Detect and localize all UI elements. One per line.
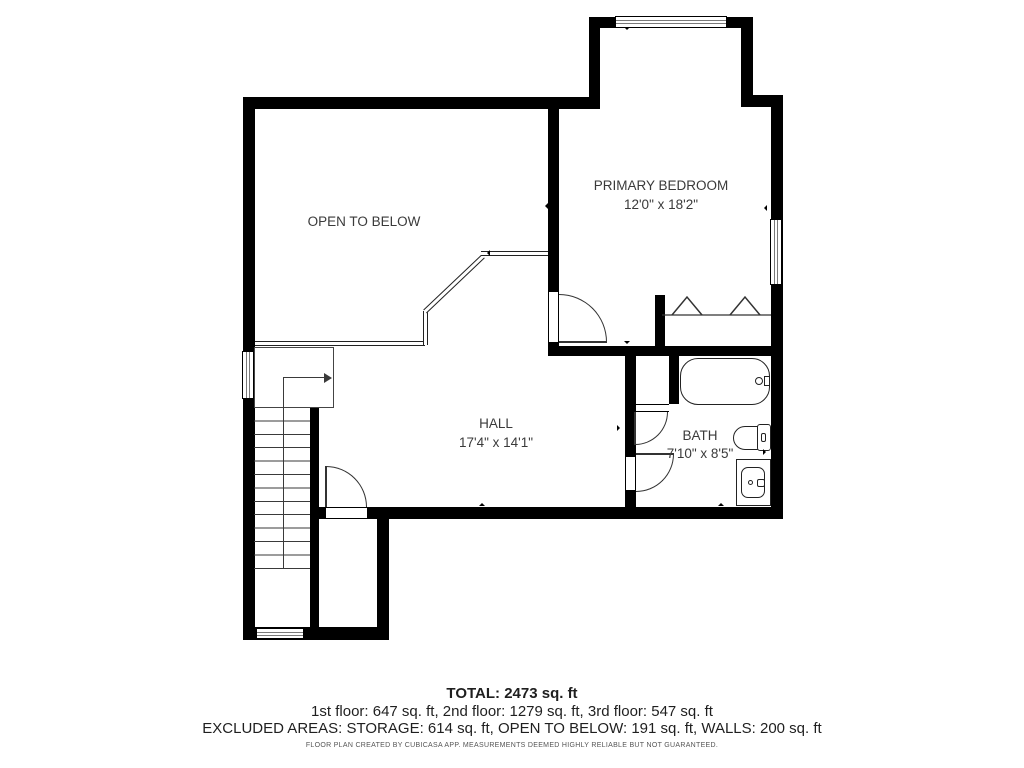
tick-mark bbox=[479, 500, 485, 506]
room-label-bath: BATH 7'10" x 8'5" bbox=[667, 427, 734, 463]
window bbox=[242, 351, 254, 399]
room-label-open-to-below: OPEN TO BELOW bbox=[308, 212, 421, 231]
door-arc bbox=[559, 294, 607, 342]
floor-plan-page: OPEN TO BELOW PRIMARY BEDROOM 12'0" x 18… bbox=[0, 0, 1024, 768]
wall bbox=[548, 97, 559, 292]
window bbox=[770, 219, 782, 285]
stair-direction-line bbox=[283, 377, 325, 378]
stair-direction-arrow bbox=[324, 373, 337, 383]
tick-mark bbox=[542, 203, 548, 209]
wall bbox=[377, 507, 389, 640]
toilet bbox=[733, 426, 760, 450]
door-arc bbox=[635, 412, 668, 445]
room-label-hall: HALL 17'4" x 14'1" bbox=[459, 414, 533, 452]
closet-bifold-doors bbox=[660, 293, 774, 318]
window bbox=[256, 628, 304, 639]
tick-mark bbox=[624, 341, 630, 347]
door-leaf bbox=[559, 341, 607, 343]
tick-mark bbox=[312, 424, 318, 430]
room-dimensions: 7'10" x 8'5" bbox=[667, 445, 734, 463]
tick-mark bbox=[484, 250, 490, 256]
door-opening bbox=[548, 292, 559, 342]
sink-drain bbox=[748, 480, 753, 485]
wall bbox=[367, 507, 783, 519]
wall bbox=[243, 97, 255, 352]
door-opening bbox=[625, 457, 636, 490]
wall bbox=[310, 407, 319, 640]
tick-mark bbox=[761, 205, 767, 211]
wall bbox=[625, 490, 636, 510]
bathtub-faucet bbox=[764, 376, 770, 386]
door-leaf bbox=[325, 466, 327, 507]
wall bbox=[741, 17, 753, 107]
room-name: PRIMARY BEDROOM bbox=[594, 176, 729, 195]
summary-disclaimer: FLOOR PLAN CREATED BY CUBICASA APP. MEAS… bbox=[0, 741, 1024, 751]
door-leaf bbox=[634, 412, 636, 445]
stairs bbox=[254, 408, 310, 569]
wall bbox=[589, 17, 600, 109]
bathtub-faucet bbox=[755, 377, 763, 385]
tick-mark bbox=[763, 449, 769, 455]
room-dimensions: 12'0" x 18'2" bbox=[594, 195, 729, 214]
sink-faucet bbox=[757, 479, 765, 487]
wall bbox=[243, 97, 600, 109]
tick-mark bbox=[718, 500, 724, 506]
railing bbox=[423, 255, 484, 314]
room-name: OPEN TO BELOW bbox=[308, 212, 421, 231]
wall bbox=[589, 17, 617, 28]
railing bbox=[255, 341, 425, 346]
railing bbox=[423, 311, 428, 345]
tick-mark bbox=[624, 27, 630, 33]
summary-total: TOTAL: 2473 sq. ft bbox=[0, 685, 1024, 702]
room-dimensions: 17'4" x 14'1" bbox=[459, 433, 533, 452]
room-label-primary-bedroom: PRIMARY BEDROOM 12'0" x 18'2" bbox=[594, 176, 729, 214]
door-opening bbox=[326, 507, 367, 519]
railing bbox=[481, 251, 548, 256]
wall bbox=[669, 356, 679, 404]
tick-mark bbox=[617, 425, 623, 431]
summary-excluded-areas: EXCLUDED AREAS: STORAGE: 614 sq. ft, OPE… bbox=[0, 720, 1024, 737]
window bbox=[615, 16, 727, 28]
door-arc bbox=[326, 466, 367, 507]
toilet-flush-button bbox=[761, 433, 766, 442]
room-name: HALL bbox=[459, 414, 533, 433]
door-opening bbox=[636, 404, 669, 412]
stair-direction-line bbox=[283, 378, 284, 568]
wall bbox=[548, 346, 783, 356]
summary-floors: 1st floor: 647 sq. ft, 2nd floor: 1279 s… bbox=[0, 703, 1024, 720]
room-name: BATH bbox=[667, 427, 734, 445]
